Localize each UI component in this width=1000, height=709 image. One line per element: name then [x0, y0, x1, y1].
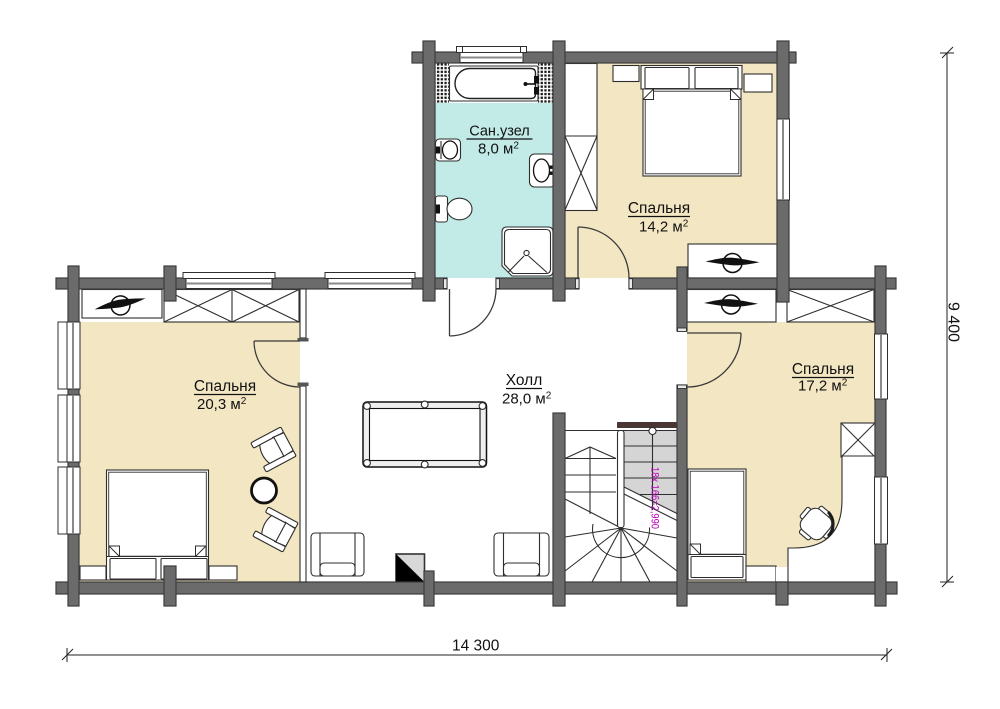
svg-text:Спальня: Спальня	[792, 361, 854, 378]
svg-text:Сан.узел: Сан.узел	[469, 124, 530, 140]
svg-text:14,2 м2: 14,2 м2	[639, 219, 689, 236]
svg-text:9 400: 9 400	[945, 302, 962, 342]
svg-text:20,3 м2: 20,3 м2	[197, 396, 247, 413]
svg-text:28,0 м2: 28,0 м2	[502, 391, 552, 408]
svg-text:14 300: 14 300	[452, 638, 500, 655]
svg-text:18х 166=2,990: 18х 166=2,990	[649, 467, 661, 529]
svg-text:8,0 м2: 8,0 м2	[478, 141, 519, 158]
svg-text:17,2 м2: 17,2 м2	[798, 378, 848, 395]
svg-text:Холл: Холл	[506, 372, 543, 389]
svg-text:Спальня: Спальня	[628, 200, 690, 217]
svg-text:Спальня: Спальня	[194, 378, 256, 395]
